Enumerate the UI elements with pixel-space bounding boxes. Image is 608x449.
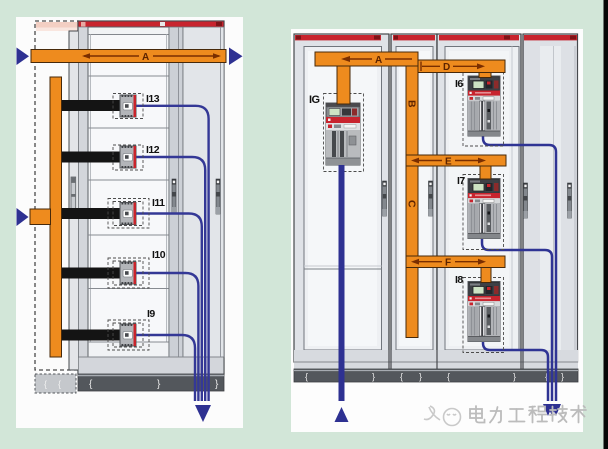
svg-text:{: { (447, 372, 450, 382)
svg-text:B: B (406, 100, 418, 108)
svg-text:E: E (445, 157, 452, 168)
svg-text:I13: I13 (146, 93, 160, 105)
svg-text:I7: I7 (457, 175, 465, 187)
svg-text:}: } (513, 372, 516, 382)
svg-text:D: D (443, 62, 450, 73)
svg-text:I11: I11 (152, 197, 165, 209)
svg-text:}: } (372, 372, 375, 382)
svg-text:{: { (44, 379, 47, 389)
svg-text:{: { (58, 379, 61, 389)
svg-text:I12: I12 (146, 144, 160, 156)
svg-text:IG: IG (309, 94, 320, 106)
svg-text:{: { (305, 372, 308, 382)
svg-text:I10: I10 (152, 249, 166, 261)
svg-text:A: A (142, 52, 149, 63)
svg-text:}: } (419, 372, 422, 382)
svg-text:{: { (400, 372, 403, 382)
svg-text:C: C (406, 200, 418, 208)
svg-text:I6: I6 (455, 78, 463, 90)
svg-text:F: F (445, 258, 451, 269)
svg-text:A: A (375, 55, 382, 66)
svg-text:I8: I8 (455, 274, 463, 286)
svg-text:I9: I9 (147, 308, 155, 320)
svg-text:}: } (561, 372, 564, 382)
